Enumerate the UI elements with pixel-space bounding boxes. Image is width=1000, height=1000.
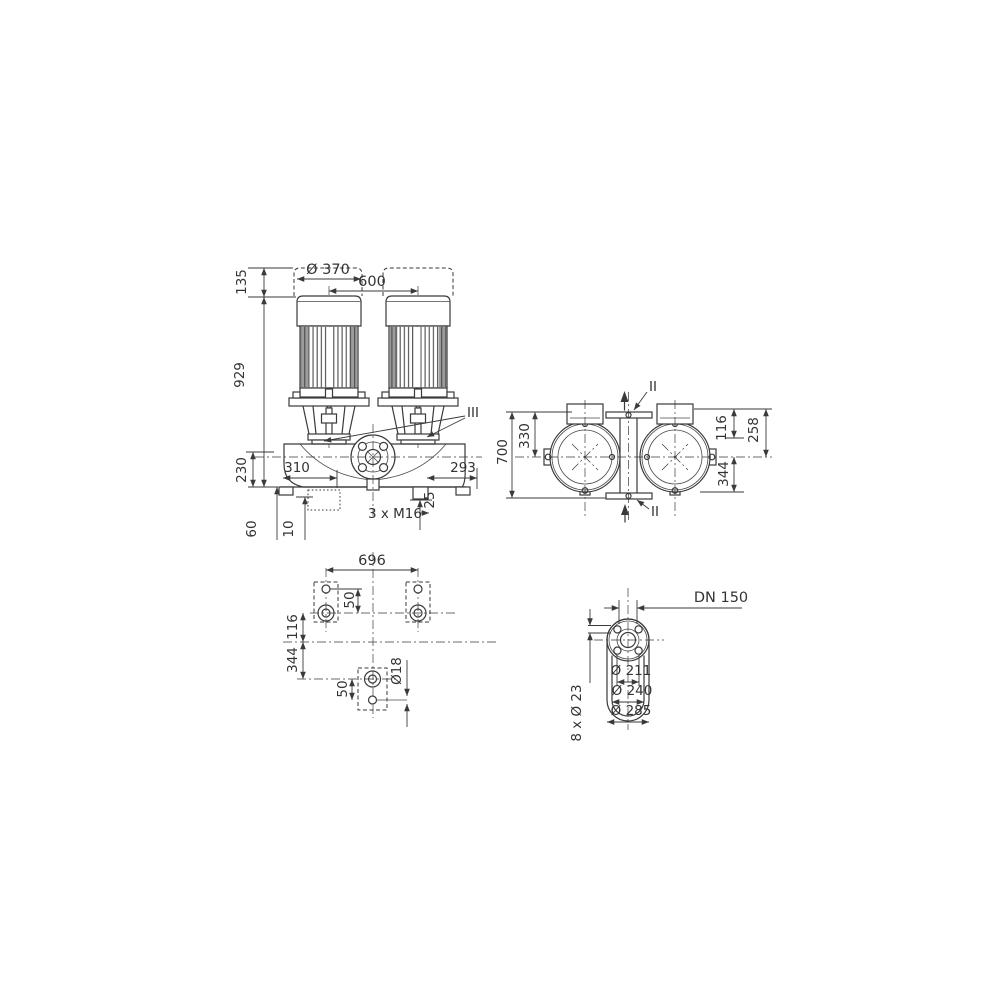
right-motor-flange-plate	[378, 398, 458, 406]
dim-293-label: 293	[450, 460, 476, 476]
flange-dimensions: DN 150 8 x Ø 23 Ø 211 Ø 240 Ø 285	[569, 590, 748, 742]
flow-arrows	[621, 391, 630, 522]
left-seal-housing	[308, 434, 350, 440]
right-lantern	[392, 406, 444, 434]
top-view: II II 700 330 116 258 344	[495, 379, 772, 522]
right-foot-pad	[456, 487, 470, 495]
pump-dimension-drawing-page: 135 929 230 Ø 370 600 310 293 25 3 x M16…	[0, 0, 1000, 1000]
label-iii: III	[467, 405, 479, 421]
foundation-dimensions: 696 50 116 344 50 Ø18	[285, 553, 418, 727]
dim-330-label: 330	[517, 423, 533, 449]
dim-344-plan-label: 344	[285, 647, 301, 673]
dim-211-label: Ø 211	[611, 663, 652, 679]
foundation-plan: 696 50 116 344 50 Ø18	[283, 552, 496, 727]
dim-240-label: Ø 240	[612, 683, 653, 699]
label-ii-bottom: II	[651, 504, 659, 520]
dim-116-plan-label: 116	[285, 614, 301, 640]
dim-135-label: 135	[234, 269, 250, 295]
label-dn150: DN 150	[694, 590, 748, 606]
dim-60-label: 60	[244, 520, 260, 537]
left-fan-cover	[544, 422, 620, 496]
dim-310-label: 310	[284, 460, 310, 476]
top-view-dimensions: 700 330 116 258 344	[495, 409, 772, 498]
dim-600-label: 600	[358, 274, 386, 290]
dim-18-label: Ø18	[389, 657, 405, 685]
dim-285-label: Ø 285	[611, 703, 652, 719]
dim-929-label: 929	[232, 362, 248, 388]
dim-696-label: 696	[358, 553, 386, 569]
dim-344-top-label: 344	[716, 461, 732, 487]
dim-50-top-label: 50	[342, 591, 358, 608]
left-motor	[289, 296, 369, 414]
right-fan-cover	[640, 422, 716, 496]
dim-8x23-label: 8 x Ø 23	[569, 684, 585, 741]
left-foot-pad	[279, 487, 293, 495]
right-seal-housing	[397, 434, 439, 440]
dim-25-label: 25	[422, 491, 438, 508]
dim-370-label: Ø 370	[306, 262, 350, 278]
dim-230-label: 230	[234, 457, 250, 483]
dim-3xm16-label: 3 x M16	[368, 506, 422, 522]
dim-700-label: 700	[495, 439, 511, 465]
label-ii-top: II	[649, 379, 657, 395]
dim-10-label: 10	[281, 520, 297, 537]
left-motor-flange-plate	[289, 398, 369, 406]
dim-50-bottom-label: 50	[335, 680, 351, 697]
flange-detail-view: DN 150 8 x Ø 23 Ø 211 Ø 240 Ø 285	[569, 588, 748, 742]
pump-dimension-drawing: 135 929 230 Ø 370 600 310 293 25 3 x M16…	[0, 0, 1000, 1000]
left-lantern	[303, 406, 355, 434]
dotted-pad	[308, 490, 340, 510]
dim-116-top-label: 116	[714, 415, 730, 441]
front-view: 135 929 230 Ø 370 600 310 293 25 3 x M16…	[232, 262, 482, 540]
dim-258-label: 258	[746, 417, 762, 443]
right-motor	[378, 296, 458, 414]
